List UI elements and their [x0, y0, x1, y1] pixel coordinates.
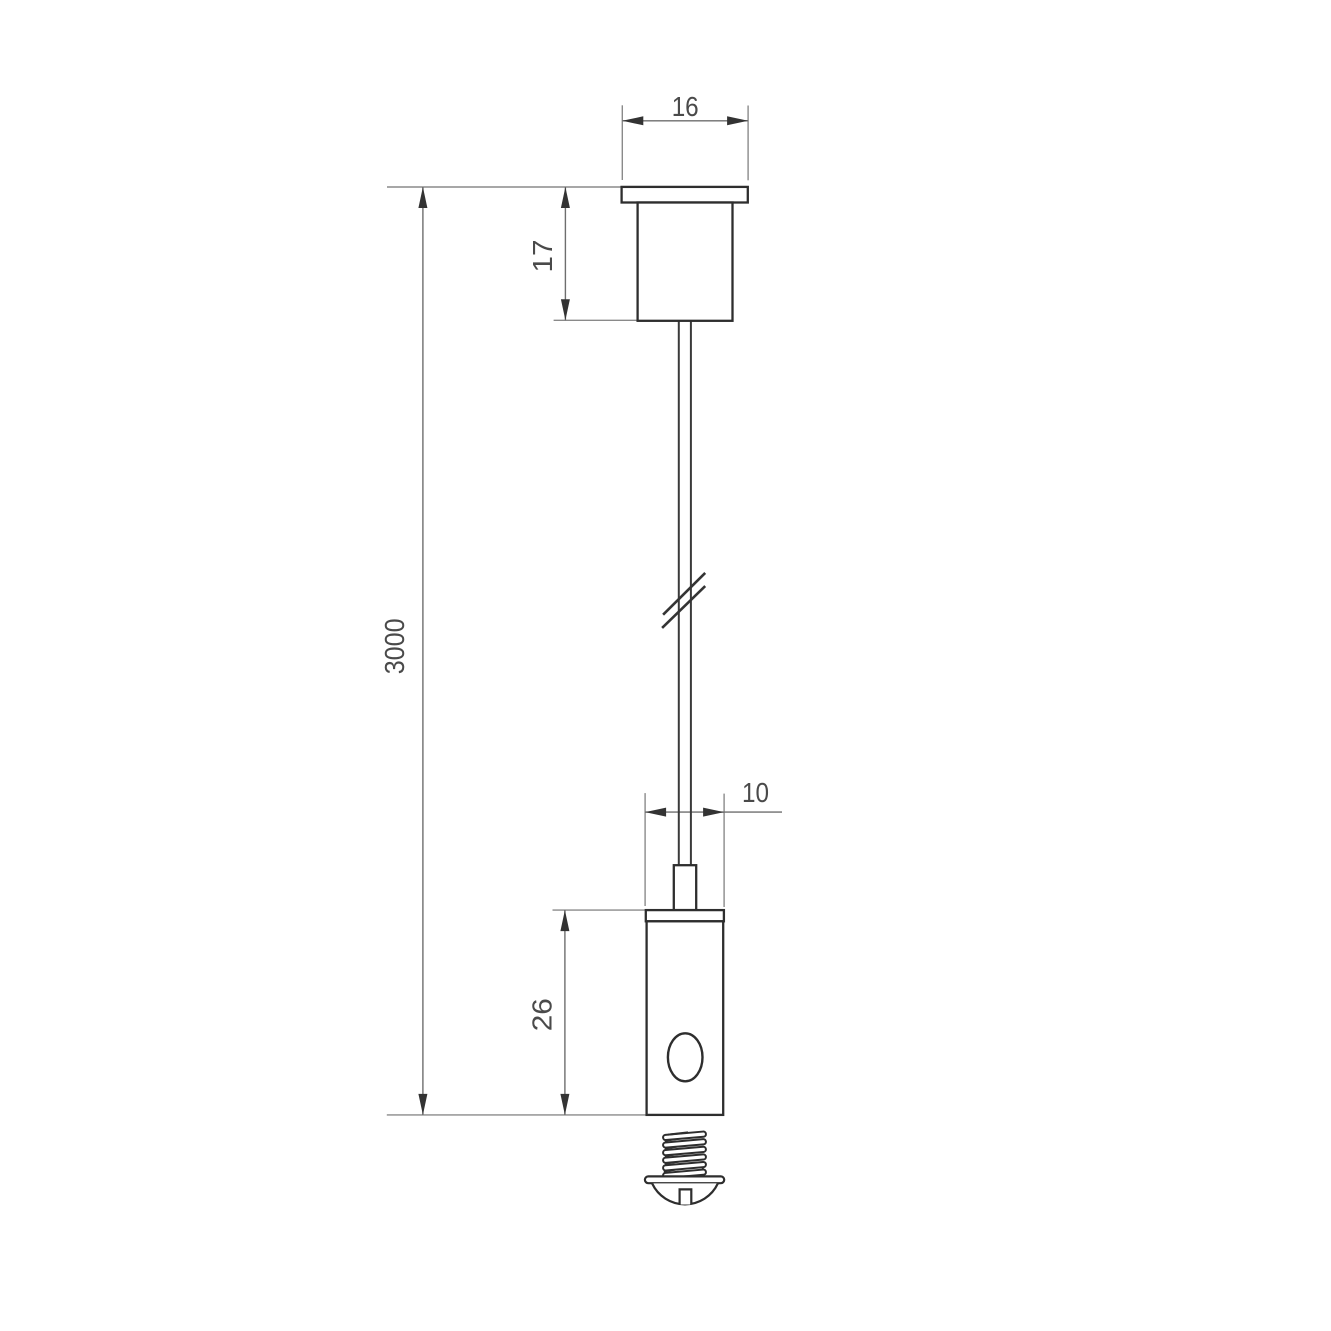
svg-text:3000: 3000 [379, 618, 410, 674]
svg-text:17: 17 [527, 240, 558, 273]
svg-text:26: 26 [527, 998, 558, 1031]
svg-text:10: 10 [742, 777, 769, 808]
svg-text:16: 16 [672, 91, 699, 122]
